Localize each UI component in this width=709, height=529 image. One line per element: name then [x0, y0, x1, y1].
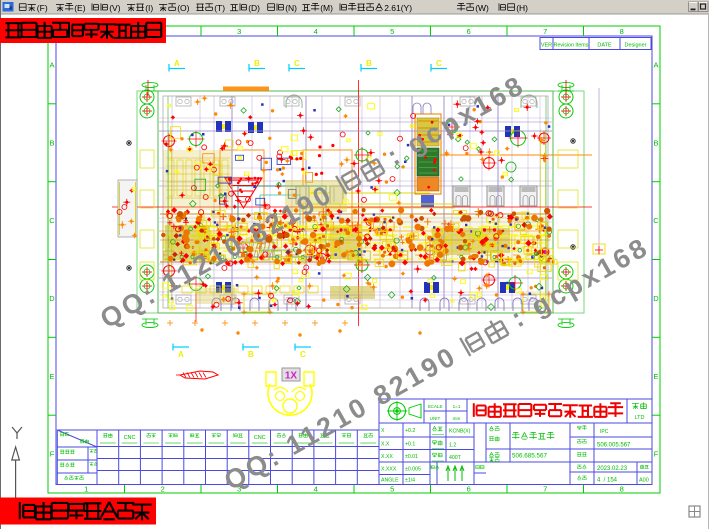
svg-text:A00: A00: [639, 478, 649, 484]
svg-text:CNC: CNC: [254, 435, 266, 441]
svg-text:mm: mm: [453, 416, 461, 421]
svg-text:+0.2: +0.2: [405, 428, 415, 434]
svg-text:(T): (T): [214, 3, 225, 13]
svg-text:F: F: [654, 450, 659, 459]
svg-text:5: 5: [390, 27, 394, 36]
svg-text:(M): (M): [320, 3, 333, 13]
svg-text:B: B: [254, 59, 260, 68]
svg-text:8: 8: [620, 485, 624, 494]
svg-text:(O): (O): [177, 3, 189, 13]
svg-text:IPC: IPC: [600, 429, 609, 435]
svg-text:±0.005: ±0.005: [405, 466, 421, 472]
svg-text:Revision Items: Revision Items: [554, 43, 589, 49]
svg-text:A: A: [174, 59, 180, 68]
svg-text:2023.02.23: 2023.02.23: [597, 466, 628, 472]
svg-text:D: D: [653, 294, 659, 303]
svg-text:5: 5: [390, 485, 394, 494]
svg-text:B: B: [366, 59, 372, 68]
svg-text:±0.01: ±0.01: [405, 454, 418, 460]
svg-text:C: C: [436, 59, 442, 68]
svg-text:B: B: [49, 138, 54, 147]
svg-text:8: 8: [620, 27, 624, 36]
svg-text:400T: 400T: [449, 455, 462, 461]
svg-text:(N): (N): [285, 3, 297, 13]
svg-text:LTD: LTD: [635, 415, 645, 421]
svg-text:(E): (E): [74, 3, 86, 13]
svg-text:C: C: [653, 216, 659, 225]
svg-text:B: B: [248, 350, 254, 359]
svg-text:4 / 154: 4 / 154: [597, 478, 618, 484]
svg-text:A: A: [178, 350, 184, 359]
svg-text:X.X: X.X: [381, 441, 390, 447]
svg-text:A: A: [653, 60, 658, 69]
svg-text:(I): (I): [145, 3, 153, 13]
svg-text:C: C: [294, 59, 300, 68]
svg-text:(V): (V): [109, 3, 121, 13]
svg-text:4: 4: [314, 485, 318, 494]
svg-text:(F): (F): [37, 3, 48, 13]
svg-text:506.005.567: 506.005.567: [597, 443, 631, 449]
svg-text:CNC: CNC: [124, 435, 136, 441]
svg-text:E: E: [653, 372, 658, 381]
svg-text:C: C: [300, 350, 306, 359]
svg-text:6: 6: [467, 27, 471, 36]
svg-text:A: A: [49, 60, 54, 69]
svg-text:2.61(Y): 2.61(Y): [384, 3, 412, 13]
svg-text:DATE: DATE: [597, 43, 612, 49]
svg-text:1=1: 1=1: [453, 404, 461, 409]
svg-text:6: 6: [467, 485, 471, 494]
svg-text:7: 7: [543, 27, 547, 36]
svg-text:Designer: Designer: [624, 43, 646, 49]
svg-text:7: 7: [543, 485, 547, 494]
svg-text:X.XX: X.XX: [381, 454, 393, 460]
svg-text:1X: 1X: [285, 371, 298, 382]
svg-text:X: X: [381, 428, 385, 434]
svg-text:VER: VER: [541, 43, 552, 49]
svg-text:506.685.567: 506.685.567: [512, 453, 548, 460]
svg-text:1.2: 1.2: [449, 443, 456, 449]
svg-text:B: B: [653, 138, 658, 147]
svg-text:(D): (D): [248, 3, 260, 13]
svg-text:UNIT: UNIT: [430, 416, 441, 421]
svg-text:3: 3: [237, 27, 241, 36]
svg-text:E: E: [49, 372, 54, 381]
svg-text:+0.1: +0.1: [405, 441, 415, 447]
svg-text:(H): (H): [516, 3, 528, 13]
svg-text:4: 4: [314, 27, 318, 36]
svg-text:C: C: [49, 216, 55, 225]
svg-text:F: F: [50, 450, 55, 459]
svg-text:(W): (W): [475, 3, 489, 13]
svg-text:1: 1: [84, 485, 88, 494]
svg-text:2: 2: [161, 485, 165, 494]
svg-text:D: D: [49, 294, 55, 303]
svg-text:X.XXX: X.XXX: [381, 466, 397, 472]
svg-text:SCALE: SCALE: [427, 404, 442, 409]
svg-text:KCNB(X): KCNB(X): [449, 429, 471, 435]
svg-text:ANGLE: ANGLE: [381, 478, 399, 484]
svg-text:±1/4: ±1/4: [405, 478, 415, 484]
